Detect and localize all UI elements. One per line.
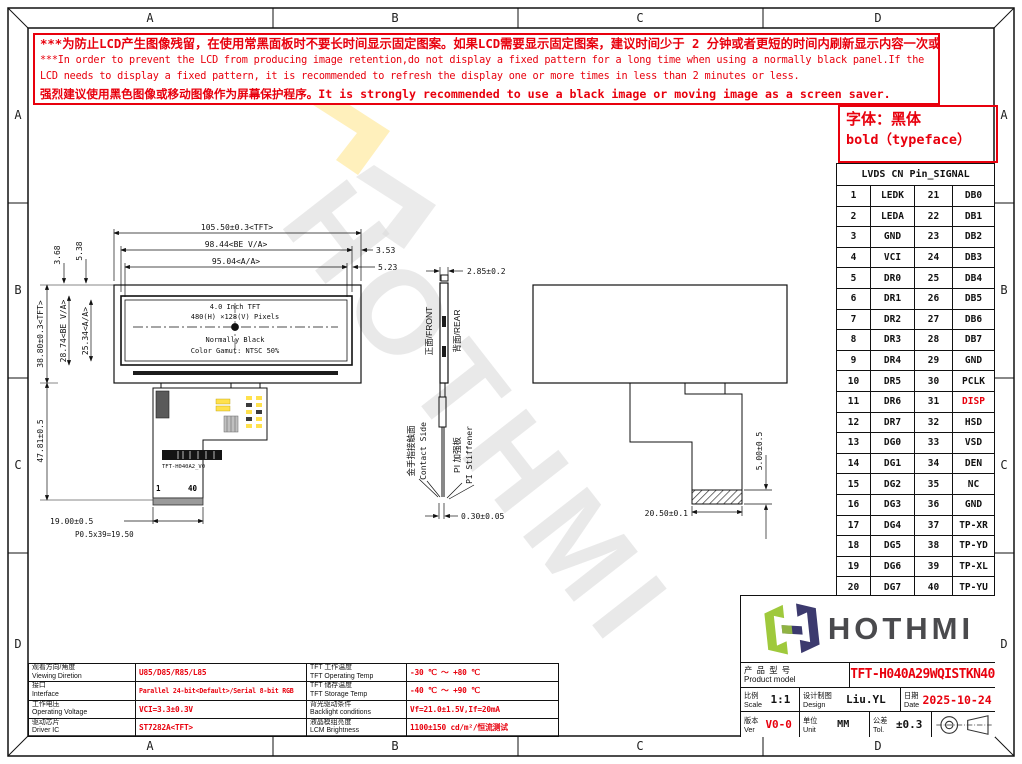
- pin-table-row: 6DR126DB5: [837, 288, 995, 309]
- pin-table-cell: 36: [915, 494, 953, 515]
- dim-label: 95.04<A/A>: [212, 257, 260, 266]
- side-front-label: 正面/FRONT: [424, 307, 434, 356]
- pin-table-cell: 18: [837, 536, 871, 557]
- pin-table-cell: 33: [915, 433, 953, 454]
- dim-label: 5.23: [378, 263, 397, 272]
- pin-table-cell: 29: [915, 350, 953, 371]
- pin-table-row: 4VCI24DB3: [837, 247, 995, 268]
- pin-table-cell: 14: [837, 453, 871, 474]
- pin-table-cell: DR1: [871, 288, 915, 309]
- dim-label: 98.44<BE V/A>: [205, 240, 268, 249]
- spec-value: -30 ℃ ～ +80 ℃: [407, 664, 559, 682]
- pin-table-cell: 32: [915, 412, 953, 433]
- pin-table-cell: 22: [915, 206, 953, 227]
- panel-spec-line: Normally Black: [205, 336, 265, 344]
- frame-row-label: C: [1000, 458, 1007, 472]
- frame-col-label: C: [636, 739, 643, 753]
- logo-wordmark: HOTHMI: [828, 611, 974, 647]
- pin-table-cell: LEDK: [871, 186, 915, 207]
- pin-table-cell: 15: [837, 474, 871, 495]
- pin-table-cell: 8: [837, 330, 871, 351]
- pin-table-cell: 3: [837, 227, 871, 248]
- spec-value: ST7282A<TFT>: [136, 719, 307, 737]
- spec-value: VCI=3.3±0.3V: [136, 701, 307, 719]
- fpc-label: TFT-H040A2_V0: [162, 464, 205, 470]
- pin-table-cell: 12: [837, 412, 871, 433]
- rear-connector-hatched: [692, 490, 742, 504]
- pin-table-cell: DG6: [871, 556, 915, 577]
- dim-label: 25.34<A/A>: [81, 307, 90, 355]
- pin-table-cell: DR2: [871, 309, 915, 330]
- frame-col-label: B: [391, 11, 398, 25]
- pin-table-row: 3GND23DB2: [837, 227, 995, 248]
- hothmi-logo-icon: [762, 602, 822, 656]
- pin-table-cell: DR6: [871, 391, 915, 412]
- product-model-label: 产 品 型 号 Product model: [741, 663, 850, 687]
- pin-table-row: 2LEDA22DB1: [837, 206, 995, 227]
- frame-row-label: C: [14, 458, 21, 472]
- front-view-outline: [114, 285, 361, 383]
- typeface-note-line: bold（typeface）: [846, 130, 990, 150]
- pin-table-cell: DG2: [871, 474, 915, 495]
- pin-table-cell: TP-XL: [953, 556, 995, 577]
- spec-label: 驱动芯片Driver IC: [29, 719, 136, 737]
- spec-label: 背光驱动条件Backlight conditions: [307, 701, 407, 719]
- image-retention-warning: ***为防止LCD产生图像残留，在使用常黑面板时不要长时间显示固定图案。如果LC…: [33, 33, 940, 105]
- pin-table-cell: DG4: [871, 515, 915, 536]
- frame-col-label: C: [636, 11, 643, 25]
- pin-table-cell: DG5: [871, 536, 915, 557]
- spec-value: U85/D85/R85/L85: [136, 664, 307, 682]
- pin-table-cell: VCI: [871, 247, 915, 268]
- pin-table-row: 16DG336GND: [837, 494, 995, 515]
- typeface-note-line: 字体：黑体: [846, 110, 990, 130]
- dim-label: 47.81±0.5: [36, 419, 45, 463]
- pin-table-cell: DB7: [953, 330, 995, 351]
- pin-table-cell: 38: [915, 536, 953, 557]
- pin-table-cell: 28: [915, 330, 953, 351]
- pin-table-cell: DB4: [953, 268, 995, 289]
- pin-table-cell: 34: [915, 453, 953, 474]
- frame-col-label: A: [146, 739, 153, 753]
- pin-table-row: 1LEDK21DB0: [837, 186, 995, 207]
- pin-table-cell: 37: [915, 515, 953, 536]
- panel-spec-line: Color Gamut: NTSC 50%: [191, 347, 280, 355]
- frame-col-label: D: [874, 739, 881, 753]
- pin-table-cell: DG3: [871, 494, 915, 515]
- date-cell: 日期Date 2025-10-24: [901, 688, 995, 712]
- pin-table-row: 11DR631DISP: [837, 391, 995, 412]
- pin-table-cell: VSD: [953, 433, 995, 454]
- pin-table-cell: 39: [915, 556, 953, 577]
- frame-col-label: D: [874, 11, 881, 25]
- pin-table-cell: 7: [837, 309, 871, 330]
- pin-table-cell: 30: [915, 371, 953, 392]
- pin-table-cell: HSD: [953, 412, 995, 433]
- title-block: HOTHMI 产 品 型 号 Product model TFT-H040A29…: [740, 595, 995, 737]
- projection-symbol-icon: [932, 712, 995, 737]
- side-pi-label-en: PI Stiffener: [465, 426, 474, 484]
- pin-table-cell: 26: [915, 288, 953, 309]
- frame-row-label: A: [14, 108, 21, 122]
- pin-assignment-table: LVDS CN Pin_SIGNAL 1LEDK21DB02LEDA22DB13…: [836, 163, 995, 598]
- pin-table-cell: 19: [837, 556, 871, 577]
- pin-table-cell: 4: [837, 247, 871, 268]
- pin-table-row: 12DR732HSD: [837, 412, 995, 433]
- pin-table-row: 15DG235NC: [837, 474, 995, 495]
- dim-label: 2.85±0.2: [467, 267, 506, 276]
- spec-label: 接口Interface: [29, 682, 136, 700]
- spec-value: 1100±150 cd/m²/恒流测试: [407, 719, 559, 737]
- pin-table-cell: 31: [915, 391, 953, 412]
- pin-table-title: LVDS CN Pin_SIGNAL: [837, 164, 995, 186]
- unit-cell: 单位Unit MM: [800, 712, 870, 737]
- pin-table-row: 18DG538TP-YD: [837, 536, 995, 557]
- frame-row-label: D: [1000, 637, 1007, 651]
- pin-table-cell: DR4: [871, 350, 915, 371]
- pin-table-cell: 11: [837, 391, 871, 412]
- dim-label: P0.5x39=19.50: [75, 530, 134, 539]
- frame-row-label: B: [14, 283, 21, 297]
- technical-drawing: HOTHMI 4.0 Inch TFT 480(H) ×128(V) Pixel…: [28, 103, 838, 660]
- side-pi-label-cn: PI 加强板: [452, 437, 462, 473]
- pin-table-cell: 23: [915, 227, 953, 248]
- pin-table-row: 19DG639TP-XL: [837, 556, 995, 577]
- pin-table-cell: TP-XR: [953, 515, 995, 536]
- pin-table-cell: DEN: [953, 453, 995, 474]
- frame-col-label: B: [391, 739, 398, 753]
- pin-table-cell: LEDA: [871, 206, 915, 227]
- typeface-note: 字体：黑体 bold（typeface）: [838, 105, 998, 163]
- spec-value: -40 ℃ ～ +90 ℃: [407, 682, 559, 700]
- spec-value: Vf=21.0±1.5V,If=20mA: [407, 701, 559, 719]
- pin-table-row: 7DR227DB6: [837, 309, 995, 330]
- scale-cell: 比例Scale 1:1: [741, 688, 800, 712]
- dim-label: 38.80±0.3<TFT>: [36, 300, 45, 368]
- dim-label: 3.53: [376, 246, 395, 255]
- spec-label: 工作电压Operating Voltage: [29, 701, 136, 719]
- pin-table-cell: 5: [837, 268, 871, 289]
- pin-table-cell: 21: [915, 186, 953, 207]
- frame-row-label: D: [14, 637, 21, 651]
- pin-table-row: 5DR025DB4: [837, 268, 995, 289]
- pin-table-cell: DB1: [953, 206, 995, 227]
- fpc-pin40-label: 40: [188, 484, 198, 493]
- pin-table-cell: 25: [915, 268, 953, 289]
- pin-table-cell: DB3: [953, 247, 995, 268]
- pin-table-cell: GND: [871, 227, 915, 248]
- pin-table-cell: 13: [837, 433, 871, 454]
- dim-label: 5.38: [75, 241, 84, 260]
- pin-table-cell: TP-YD: [953, 536, 995, 557]
- pin-table-cell: DR7: [871, 412, 915, 433]
- pin-table-cell: NC: [953, 474, 995, 495]
- fpc-outline: [153, 383, 267, 498]
- pin-table-cell: GND: [953, 494, 995, 515]
- pin-table-cell: DB5: [953, 288, 995, 309]
- pin-table-cell: GND: [953, 350, 995, 371]
- frame-row-label: A: [1000, 108, 1007, 122]
- pin-table-row: 10DR530PCLK: [837, 371, 995, 392]
- pin-table-row: 17DG437TP-XR: [837, 515, 995, 536]
- side-contact-label-cn: 金手指接触面: [406, 425, 416, 477]
- pin-table-cell: 1: [837, 186, 871, 207]
- tolerance-cell: 公差Tol. ±0.3: [870, 712, 932, 737]
- side-rear-label: 背面/REAR: [452, 310, 462, 353]
- pin-table-cell: DB2: [953, 227, 995, 248]
- warning-line-cn: 强烈建议使用黑色图像或移动图像作为屏幕保护程序。It is strongly r…: [40, 86, 933, 103]
- spec-label: 观看方向/角度Viewing Diretion: [29, 664, 136, 682]
- pin-table-cell: 9: [837, 350, 871, 371]
- pin-table-cell: DB6: [953, 309, 995, 330]
- side-contact-label-en: Contact Side: [419, 422, 428, 480]
- dim-label: 3.68: [53, 245, 62, 264]
- warning-line-cn: ***为防止LCD产生图像残留，在使用常黑面板时不要长时间显示固定图案。如果LC…: [40, 36, 933, 53]
- fpc-pin1-label: 1: [156, 484, 161, 493]
- logo-row: HOTHMI: [741, 596, 995, 663]
- pin-table-cell: 35: [915, 474, 953, 495]
- pin-table-cell: DG1: [871, 453, 915, 474]
- pin-table-body: 1LEDK21DB02LEDA22DB13GND23DB24VCI24DB35D…: [837, 186, 995, 598]
- pin-table-cell: 24: [915, 247, 953, 268]
- datasheet-page: A B C D A B C D A B C D A B C D HOTHMI: [0, 0, 1022, 764]
- front-light-bar: [133, 371, 338, 375]
- dim-label: 5.00±0.5: [755, 432, 764, 471]
- dim-label: 19.00±0.5: [50, 517, 94, 526]
- spec-label: TFT 工作温度TFT Operating Temp: [307, 664, 407, 682]
- dim-label: 20.50±0.1: [645, 509, 689, 518]
- dim-label: 0.30±0.05: [461, 512, 505, 521]
- frame-col-label: A: [146, 11, 153, 25]
- pin-table-cell: DB0: [953, 186, 995, 207]
- dim-label: 105.50±0.3<TFT>: [201, 223, 273, 232]
- spec-value: Parallel 24-bit<Default>/Serial 8-bit RG…: [136, 682, 307, 700]
- pin-table-row: 9DR429GND: [837, 350, 995, 371]
- fpc-connector: [153, 498, 203, 505]
- panel-spec-line: 4.0 Inch TFT: [210, 303, 261, 311]
- dim-label: 28.74<BE V/A>: [59, 300, 68, 363]
- pin-table-cell: PCLK: [953, 371, 995, 392]
- pin-table-row: 13DG033VSD: [837, 433, 995, 454]
- warning-line-en: LCD needs to display a fixed pattern, it…: [40, 69, 933, 86]
- fpc-components: TFT-H040A2_V0 1 40: [156, 391, 262, 493]
- pin-table-cell: DG0: [871, 433, 915, 454]
- pin-table-row: 14DG134DEN: [837, 453, 995, 474]
- pin-table-cell: DR0: [871, 268, 915, 289]
- spec-label: TFT 储存温度TFT Storage Temp: [307, 682, 407, 700]
- design-cell: 设计制图Design Liu.YL: [800, 688, 901, 712]
- frame-row-label: B: [1000, 283, 1007, 297]
- pin-table-cell: 16: [837, 494, 871, 515]
- pin-table-cell: DISP: [953, 391, 995, 412]
- pin-table-row: 8DR328DB7: [837, 330, 995, 351]
- pin-table-cell: 2: [837, 206, 871, 227]
- pin-table-cell: 10: [837, 371, 871, 392]
- product-model-value: TFT-H040A29WQISTKN40: [850, 663, 995, 687]
- pin-table-cell: DR5: [871, 371, 915, 392]
- spec-label: 液晶模组亮度LCM Brightness: [307, 719, 407, 737]
- pin-table-cell: 27: [915, 309, 953, 330]
- spec-table: 观看方向/角度Viewing Diretion U85/D85/R85/L85 …: [28, 663, 559, 737]
- pin-table-cell: 6: [837, 288, 871, 309]
- version-cell: 版本Ver V0-0: [741, 712, 800, 737]
- warning-line-en: ***In order to prevent the LCD from prod…: [40, 53, 933, 70]
- pin-table-cell: 17: [837, 515, 871, 536]
- pin-table-cell: DR3: [871, 330, 915, 351]
